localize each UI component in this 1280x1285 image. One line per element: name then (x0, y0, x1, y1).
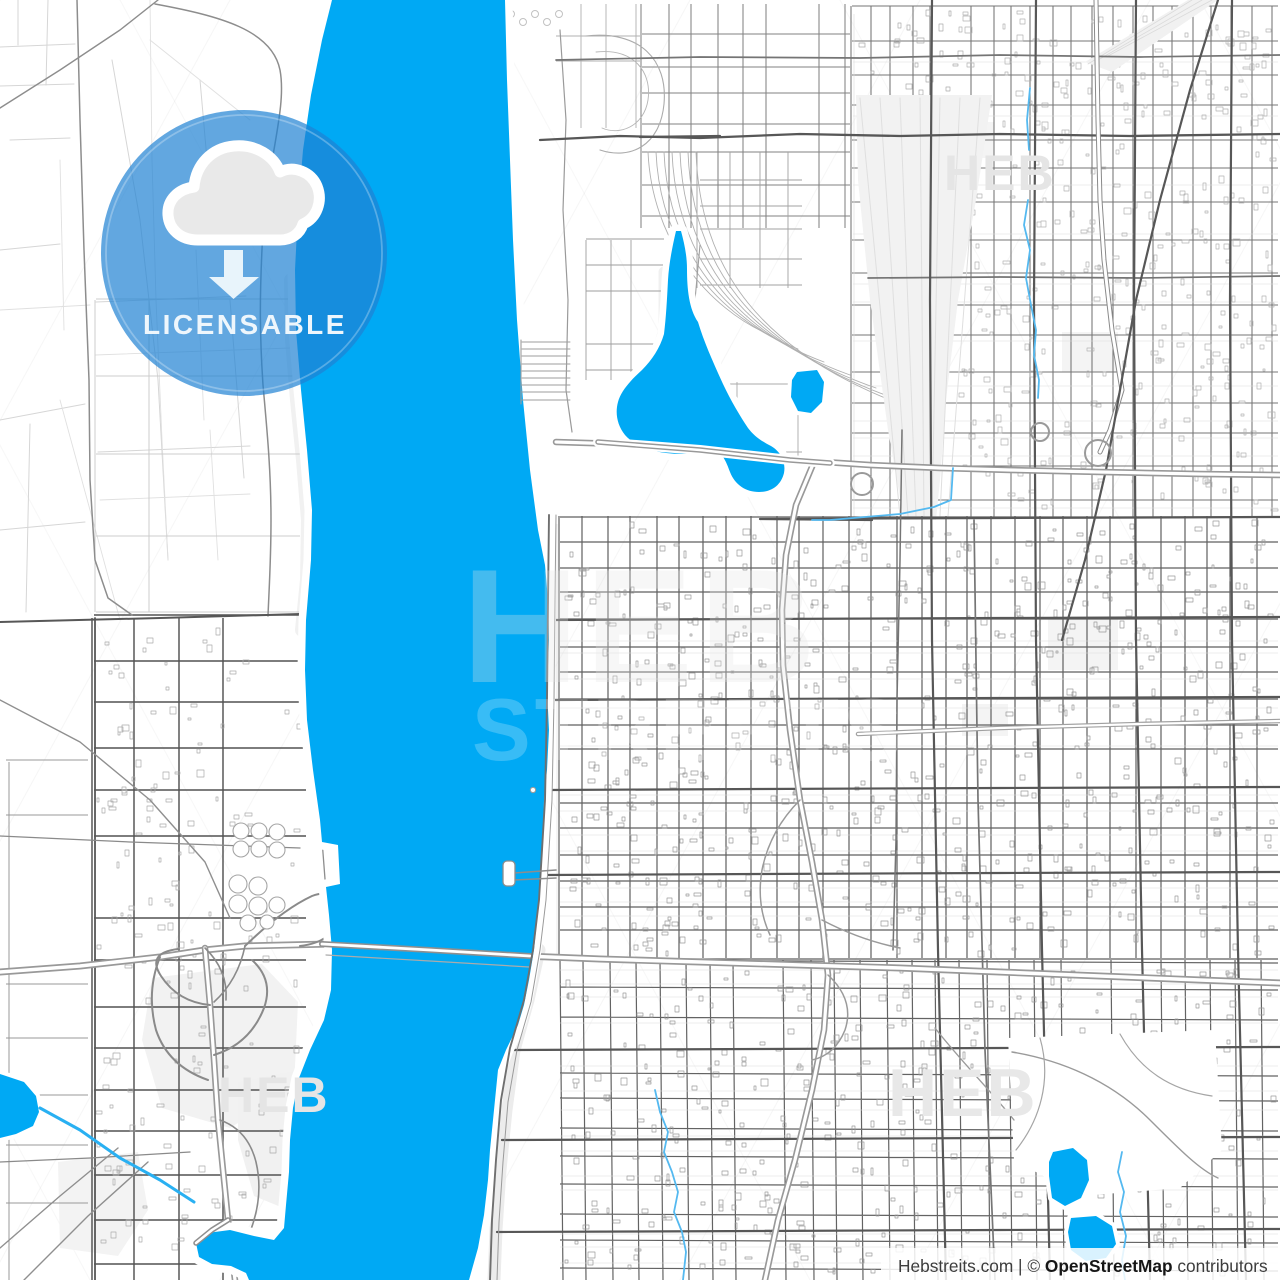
svg-text:STREETS: STREETS (472, 680, 906, 779)
svg-text:Hebstreits.com | © OpenStreetM: Hebstreits.com | © OpenStreetMap contrib… (898, 1256, 1268, 1276)
svg-text:LICENSABLE: LICENSABLE (143, 309, 347, 340)
svg-text:HEB: HEB (218, 1067, 330, 1123)
svg-text:HEB: HEB (944, 145, 1056, 201)
svg-text:HEB: HEB (888, 1055, 1038, 1131)
